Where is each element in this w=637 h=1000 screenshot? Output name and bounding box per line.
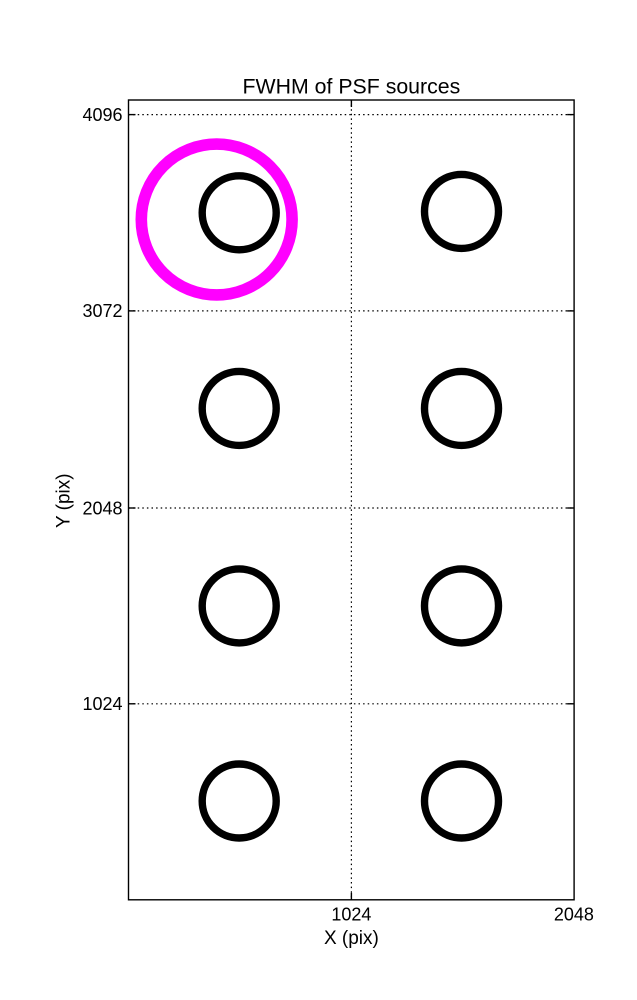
svg-text:4096: 4096 (82, 105, 122, 125)
svg-text:1024: 1024 (82, 694, 122, 714)
svg-text:2048: 2048 (554, 904, 594, 924)
svg-text:FWHM of PSF sources: FWHM of PSF sources (243, 74, 461, 98)
svg-text:1024: 1024 (331, 904, 371, 924)
svg-text:2048: 2048 (82, 498, 122, 518)
svg-text:3072: 3072 (82, 301, 122, 321)
svg-text:Y (pix): Y (pix) (54, 473, 75, 528)
svg-text:X (pix): X (pix) (324, 928, 379, 949)
